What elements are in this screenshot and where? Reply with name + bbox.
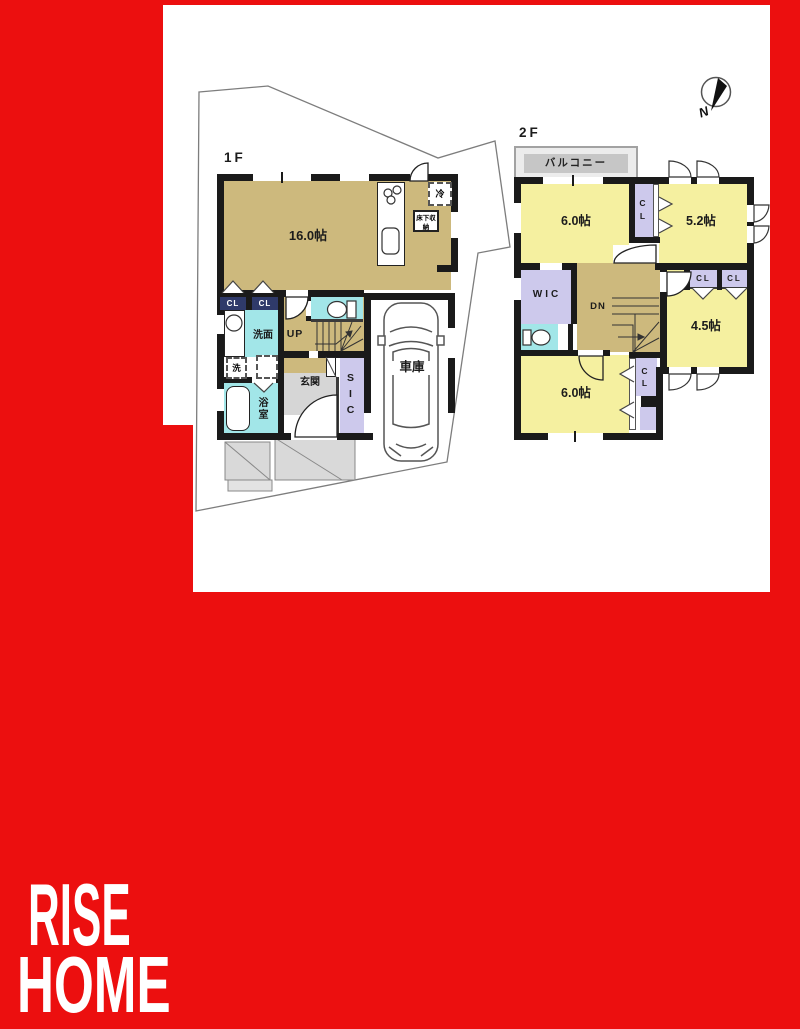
wall-segment (571, 270, 577, 324)
wall-segment (568, 324, 573, 350)
wall-segment (514, 263, 540, 270)
washer-box: 洗 (226, 357, 247, 379)
room-divider (311, 319, 363, 322)
wall-segment (437, 265, 458, 272)
door-gap (309, 351, 318, 358)
door-gap (660, 272, 667, 292)
wall-segment (308, 290, 364, 297)
closet-a-1f: CL (220, 297, 246, 310)
label-closet-n: CL (638, 192, 647, 230)
closet-lip (690, 287, 717, 289)
wall-segment (629, 352, 661, 358)
wall-segment (217, 433, 285, 440)
label-garage: 車庫 (392, 361, 432, 375)
changing-area-box (256, 355, 278, 379)
label-ldk: 16.0帖 (258, 229, 358, 243)
closet-b-2f: CL (722, 270, 747, 287)
listing-image: バルコニー CL CL CL CL 冷 床下収納 洗 (0, 0, 800, 600)
bathtub (226, 386, 250, 431)
window (697, 177, 719, 184)
window (747, 205, 754, 222)
door-gap (558, 326, 568, 349)
window-tick (572, 175, 574, 186)
floor-storage-box: 床下収納 (413, 210, 439, 232)
window (514, 203, 521, 233)
entrance-approach-steps (225, 438, 355, 491)
door-swing-zone (613, 245, 630, 263)
window (448, 328, 455, 358)
closet-lip (722, 287, 747, 289)
brand-name-line2: HOME (17, 945, 171, 1025)
refrigerator-box: 冷 (428, 182, 452, 206)
wall-segment (278, 293, 284, 440)
label-bath: 浴室 (256, 388, 266, 430)
room-toilet-1f (311, 297, 363, 319)
wall-segment (684, 263, 690, 290)
wall-segment (629, 237, 660, 243)
brand-block: RISE HOME (0, 425, 193, 600)
closet-b-1f: CL (252, 297, 278, 310)
label-bedroom-se: 4.5帖 (671, 320, 741, 334)
wall-segment (717, 263, 722, 290)
window (514, 278, 521, 300)
wall-segment (217, 290, 286, 297)
washroom-vanity (224, 310, 245, 357)
balcony: バルコニー (514, 146, 638, 179)
label-washroom: 洗面 (244, 330, 282, 341)
window (697, 367, 719, 374)
label-sic: SIC (345, 365, 356, 427)
window (217, 315, 224, 334)
door-gap (291, 433, 337, 440)
wall-segment (364, 293, 455, 300)
wall-segment (655, 263, 750, 270)
label-wic: WIC (524, 289, 570, 300)
shoe-cabinet (326, 357, 336, 377)
label-stairs-up: UP (283, 329, 307, 341)
door-gap (578, 350, 603, 356)
closet-a-2f: CL (690, 270, 717, 287)
window-tick (281, 172, 283, 183)
window (340, 174, 369, 181)
window-tick (574, 431, 576, 442)
wall-segment (629, 183, 635, 243)
label-bedroom-sw: 6.0帖 (541, 387, 611, 401)
door-gap (540, 263, 562, 270)
door-gap (410, 174, 428, 181)
window (747, 226, 754, 243)
room-closet-sw-lower (640, 407, 657, 430)
kitchen-counter (377, 182, 405, 266)
label-bedroom-nw: 6.0帖 (541, 215, 611, 229)
floor1-title: 1F (224, 151, 246, 166)
floor2-title: 2F (519, 126, 541, 141)
label-stairs-down: DN (583, 302, 613, 312)
window (669, 367, 691, 374)
wall-segment (641, 396, 661, 407)
wall-segment (562, 263, 577, 270)
window (669, 177, 691, 184)
label-bedroom-ne: 5.2帖 (666, 215, 736, 229)
label-entrance: 玄関 (290, 377, 330, 388)
room-toilet-2f (521, 324, 558, 350)
label-closet-sw: CL (640, 363, 649, 393)
door-gap (306, 301, 311, 316)
closet-track (629, 358, 636, 430)
window (217, 389, 224, 411)
window (451, 212, 458, 238)
wall-segment (336, 377, 339, 433)
balcony-label: バルコニー (524, 154, 628, 173)
